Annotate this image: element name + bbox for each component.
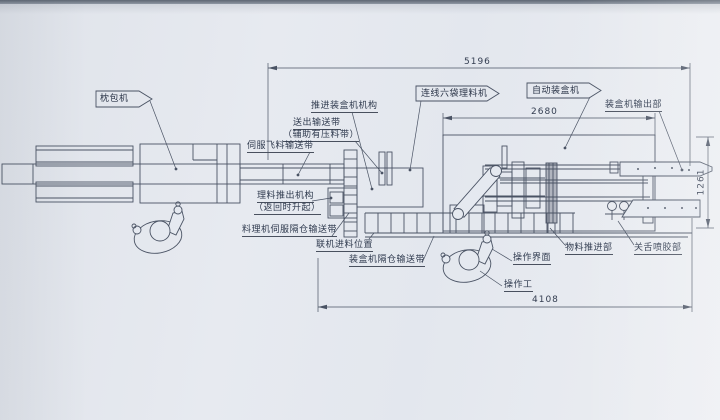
pushout-mechanism-label-line2: （返回时升起） xyxy=(254,203,321,215)
push-mechanism-label: 推进装盒机机构 xyxy=(311,101,378,113)
inline-organizer-flag-label: 连线六袋理料机 xyxy=(421,89,488,99)
operator-figure-top-view-2 xyxy=(441,231,494,286)
servo-compartment-belt-label: 料理机伺服隔仓输送带 xyxy=(242,225,337,237)
material-push-section-label: 物料推进部 xyxy=(565,243,613,255)
auto-cartoner-flag-label: 自动装盒机 xyxy=(532,86,580,96)
pillow-packer-machine xyxy=(2,144,240,203)
cad-linework xyxy=(0,0,720,420)
operator-interface-label: 操作界面 xyxy=(513,253,551,265)
glue-section-label: 关舌喷胶部 xyxy=(634,243,682,255)
cartoner-compartment-belt-label: 装盒机隔仓输送带 xyxy=(349,255,425,267)
outfeed-belt-label-line1: 送出输送带 xyxy=(293,118,341,130)
drawing-sheet: 枕包机 连线六袋理料机 自动装盒机 推进装盒机机构 送出输送带 （辅助有压料带）… xyxy=(0,0,720,420)
operator-label: 操作工 xyxy=(504,280,533,292)
cartoner-machine xyxy=(443,135,712,233)
operator-figure-top-view xyxy=(132,202,185,257)
cartoner-output-label: 装盒机输出部 xyxy=(605,100,662,112)
inline-feed-position-label: 联机进料位置 xyxy=(316,240,373,252)
dim-text-floor: 4108 xyxy=(532,295,559,305)
dim-text-cartoner: 2680 xyxy=(531,107,558,117)
pillow-packer-flag-label: 枕包机 xyxy=(100,94,129,104)
dim-text-height: 1261 xyxy=(696,169,706,196)
dim-text-overall: 5196 xyxy=(464,57,491,67)
pushout-mechanism-label-line1: 理料推出机构 xyxy=(257,191,314,203)
servo-fly-belt-label: 伺服飞料输送带 xyxy=(247,141,314,153)
dimension-overall-5196 xyxy=(268,63,690,166)
